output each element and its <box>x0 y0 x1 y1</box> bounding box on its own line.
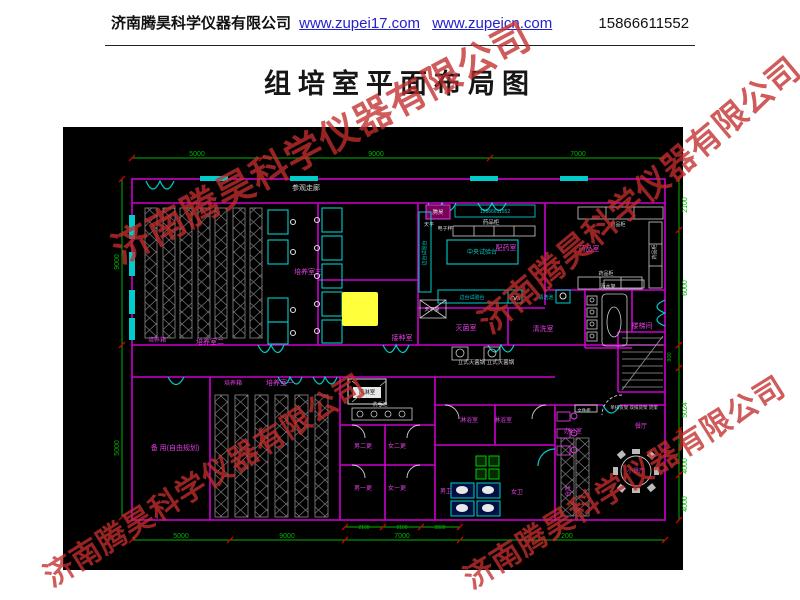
dim-label: 5024 <box>682 402 689 418</box>
dim-label: 2100 <box>358 525 369 531</box>
dim-label: 5000 <box>189 151 205 158</box>
room-label: 培养箱 <box>148 336 166 344</box>
room-label: 淋浴室 <box>494 416 512 424</box>
equipment-label: 腾昊 <box>432 208 444 216</box>
equipment-label: 沥水架 <box>600 283 615 290</box>
room-label: 男二更 <box>354 443 372 450</box>
equipment-label: 边台试验台 <box>421 240 428 265</box>
equipment-label: 清洗池 <box>538 294 553 301</box>
dim-label: 9000 <box>368 151 384 158</box>
equipment-label: 风淋室 <box>359 388 376 396</box>
room-label: 仓库 <box>564 485 572 497</box>
page: { "header": { "company": "济南腾昊科学仪器有限公司",… <box>0 0 800 600</box>
room-label: 办公室 <box>564 427 582 435</box>
room-label: 女卫 <box>511 488 523 496</box>
equipment-label: 药品柜 <box>610 221 625 228</box>
dim-label: 5000 <box>114 440 121 456</box>
room-label: 培养室二 <box>196 337 224 346</box>
room-label: 清洗室 <box>533 324 554 333</box>
room-label: 培养箱 <box>224 379 242 387</box>
equipment-label: 15866611552 <box>480 209 510 215</box>
room-label: 男一更 <box>354 485 372 492</box>
equipment-label: 立式灭菌锅 立式灭菌锅 <box>458 358 515 366</box>
dim-label: 4000 <box>682 458 689 474</box>
equipment-label: 单排货架 双排货架 货架 <box>610 404 658 411</box>
room-label: 女二更 <box>388 442 406 450</box>
room-label: 小餐厅 <box>627 467 645 475</box>
dim-label: 4000 <box>682 496 689 512</box>
equipment-label: 药品柜 <box>598 270 613 277</box>
equipment-label: 中央试验台 <box>467 248 497 256</box>
equipment-label: 药品柜 <box>483 218 500 226</box>
room-label: 配药室 <box>496 243 517 252</box>
room-label: 参观走廊 <box>292 183 320 192</box>
dim-label: 9000 <box>279 533 295 540</box>
equipment-label: 边台试验台 <box>459 294 484 301</box>
dim-label: 2800 <box>434 525 445 531</box>
room-label: 药品室 <box>579 244 600 253</box>
dim-label: 7000 <box>394 533 410 540</box>
room-label: 备 用(自由规划) <box>151 443 200 452</box>
equipment-label: 天平 <box>424 222 434 228</box>
room-label: 女一更 <box>388 484 406 492</box>
dim-label: 6000 <box>682 280 689 296</box>
room-label: 淋浴室 <box>460 416 478 424</box>
equipment-label: 电子秤 <box>437 225 452 232</box>
equipment-label: 天平桌 <box>424 306 439 313</box>
dim-label: 7000 <box>570 151 586 158</box>
dim-label: 9000 <box>114 254 121 270</box>
dim-label: 900 <box>667 352 673 361</box>
equipment-label: 药品柜 <box>651 244 658 259</box>
room-label: 培养室三 <box>294 267 322 276</box>
room-label: 餐厅 <box>635 422 647 430</box>
equipment-label: 洗手池 <box>372 401 387 408</box>
dim-label: 5000 <box>173 533 189 540</box>
room-label: 男卫 <box>440 488 452 495</box>
floor-plan-drawing: 5000900070009000500021006000900502440004… <box>0 0 800 600</box>
dim-label: 2100 <box>682 197 689 213</box>
room-label: 楼梯间 <box>632 321 653 330</box>
dim-label: 2100 <box>396 525 407 531</box>
equipment-label: 文件柜 <box>577 407 591 414</box>
room-label: 灭菌室 <box>456 323 477 332</box>
room-label: 接种室 <box>392 333 413 342</box>
dim-label: 7200 <box>557 533 573 540</box>
highlight-box <box>342 292 378 326</box>
room-label: 培养室一 <box>266 378 294 387</box>
